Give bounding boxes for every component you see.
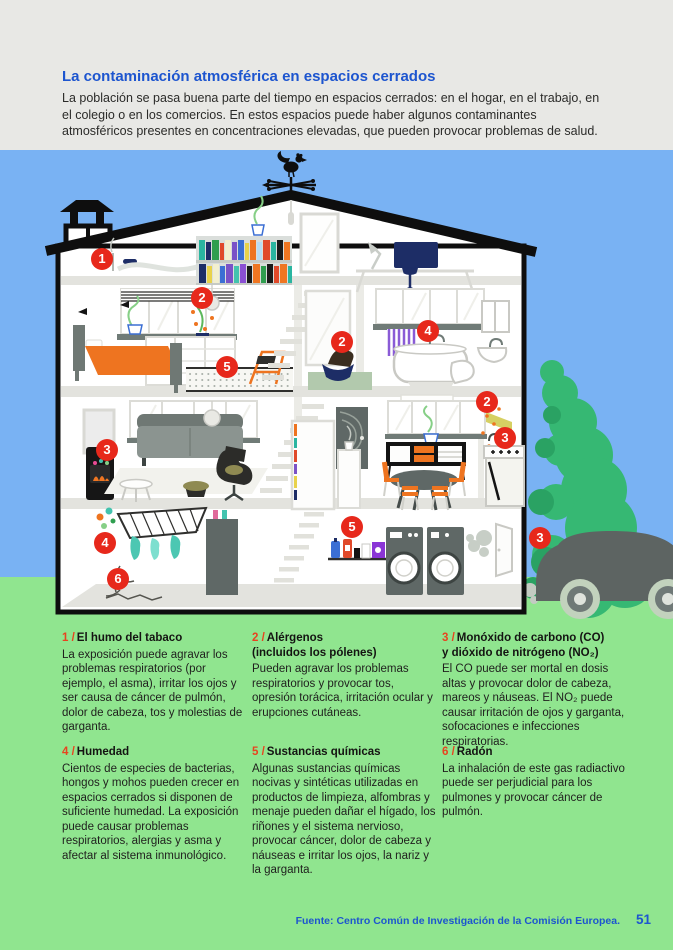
legend-body: Algunas sustancias químicas nocivas y si…: [252, 762, 436, 878]
page-number: 51: [636, 912, 651, 927]
legend-title: Alérgenos: [267, 632, 323, 644]
source-attribution: Fuente: Centro Común de Investigación de…: [296, 915, 620, 927]
marker-1-tobacco: 1: [91, 248, 113, 270]
legend-heading: 1 /El humo del tabaco: [62, 631, 246, 646]
legend-body: El CO puede ser mortal en dosis altas y …: [442, 662, 626, 749]
legend-block-tobacco: 1 /El humo del tabaco La exposición pued…: [62, 631, 246, 735]
legend-number: 6 /: [442, 746, 455, 758]
legend-block-chemicals: 5 /Sustancias químicas Algunas sustancia…: [252, 745, 436, 878]
legend-heading: 4 /Humedad: [62, 745, 246, 760]
legend-number: 1 /: [62, 632, 75, 644]
marker-4-bathroom-humidity: 4: [417, 320, 439, 342]
legend-title: Monóxido de carbono (CO): [457, 632, 605, 644]
legend-body: La inhalación de este gas radiactivo pue…: [442, 762, 626, 820]
legend-block-co-no2: 3 /Monóxido de carbono (CO)y dióxido de …: [442, 631, 626, 749]
marker-5-cleaning-products: 5: [341, 516, 363, 538]
legend-body: La exposición puede agravar los problema…: [62, 648, 246, 735]
marker-2-pet-allergens: 2: [331, 331, 353, 353]
legend-number: 2 /: [252, 632, 265, 644]
legend-body: Cientos de especies de bacterias, hongos…: [62, 762, 246, 864]
infographic-page: { "header": { "title": "La contaminación…: [0, 0, 673, 950]
marker-3-car-exhaust: 3: [529, 527, 551, 549]
page-title: La contaminación atmosférica en espacios…: [62, 68, 435, 85]
washing-machine-icon: [386, 527, 423, 595]
source-prefix: Fuente:: [296, 915, 337, 927]
marker-4-laundry-humidity: 4: [94, 532, 116, 554]
weathervane-rooster-icon: [262, 151, 316, 196]
marker-3-gas-stove: 3: [494, 427, 516, 449]
legend-heading: 2 /Alérgenos(incluidos los pólenes): [252, 631, 436, 660]
legend-title-line2: (incluidos los pólenes): [252, 646, 436, 661]
header-band: La contaminación atmosférica en espacios…: [0, 0, 673, 150]
legend-heading: 3 /Monóxido de carbono (CO)y dióxido de …: [442, 631, 626, 660]
legend-block-humidity: 4 /Humedad Cientos de especies de bacter…: [62, 745, 246, 863]
legend-title: Sustancias químicas: [267, 746, 381, 758]
legend-title: Humedad: [77, 746, 129, 758]
legend-number: 3 /: [442, 632, 455, 644]
marker-2-pollen-bedroom: 2: [191, 287, 213, 309]
legend-block-radon: 6 /Radón La inhalación de este gas radia…: [442, 745, 626, 820]
mirror-cabinet-icon: [482, 301, 509, 332]
legend-heading: 5 /Sustancias químicas: [252, 745, 436, 760]
legend-block-allergens: 2 /Alérgenos(incluidos los pólenes) Pued…: [252, 631, 436, 720]
marker-5-rug-chemicals: 5: [216, 356, 238, 378]
marker-6-radon: 6: [107, 568, 129, 590]
legend-title: El humo del tabaco: [77, 632, 182, 644]
marker-2-kitchen-pollen: 2: [476, 391, 498, 413]
intro-paragraph: La población se pasa buena parte del tie…: [62, 90, 610, 140]
wardrobe-icon: [292, 421, 334, 509]
legend-title-line2: y dióxido de nitrógeno (NO₂): [442, 646, 626, 661]
source-text: Centro Común de Investigación de la Comi…: [336, 915, 620, 927]
bookshelf-icon: [196, 236, 292, 285]
legend-title: Radón: [457, 746, 493, 758]
dryer-icon: [427, 527, 464, 595]
legend-number: 5 /: [252, 746, 265, 758]
legend-body: Pueden agravar los problemas respiratori…: [252, 662, 436, 720]
boiler-icon: [206, 510, 238, 595]
legend-heading: 6 /Radón: [442, 745, 626, 760]
marker-3-fireplace: 3: [96, 439, 118, 461]
legend-number: 4 /: [62, 746, 75, 758]
